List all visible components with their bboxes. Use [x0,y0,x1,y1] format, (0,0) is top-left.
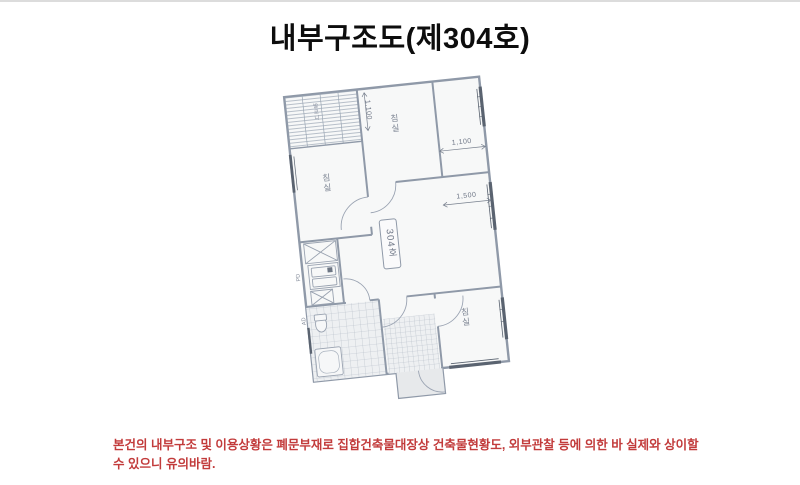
entry-area [383,313,445,398]
balcony-label: 발코니 [311,103,318,121]
bedroom-left-label: 침실 [321,173,332,194]
note-line-2: 수 있으니 유의바람. [113,455,773,474]
floor-plan: 발코니 침실 침실 침실 304호 PD AD 1,100 1,100 1,50… [280,72,518,414]
appraisal-note: 본건의 내부구조 및 이용상황은 폐문부재로 집합건축물대장상 건축물현황도, … [113,436,773,475]
bedroom-top-label: 침실 [389,113,400,134]
page-title: 내부구조도(제304호) [0,15,800,57]
ad-duct-label: AD [301,317,308,325]
note-line-1: 본건의 내부구조 및 이용상황은 폐문부재로 집합건축물대장상 건축물현황도, … [113,436,773,455]
bathroom-area [306,300,386,381]
balcony-area [284,90,362,149]
top-divider [0,0,800,2]
bedroom-bottom-label: 침실 [460,307,471,328]
pd-duct-label: PD [296,273,303,281]
